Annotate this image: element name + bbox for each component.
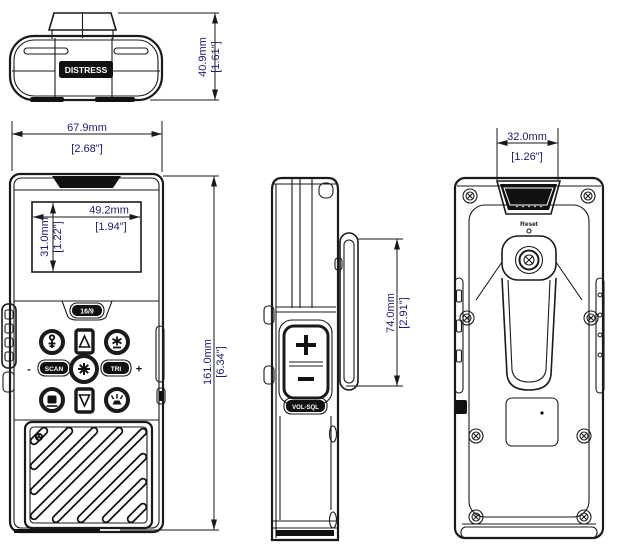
key-bottom-right bbox=[106, 389, 128, 411]
clip-dim-mm: 74.0mm bbox=[385, 293, 397, 333]
back-body-outline bbox=[455, 178, 603, 538]
volume-rocker bbox=[279, 320, 332, 404]
reset-hole bbox=[527, 229, 531, 233]
front-height-mm: 161.0mm bbox=[202, 339, 214, 385]
speaker-grille bbox=[25, 422, 152, 528]
key-tri-label: TRI bbox=[111, 366, 122, 373]
belt-clip-side bbox=[340, 233, 358, 390]
antenna-socket bbox=[319, 183, 333, 198]
key-top-right bbox=[106, 331, 128, 353]
lcd-height-mm: 31.0mm bbox=[39, 217, 51, 257]
front-width-dimension: 67.9mm [2.68"] bbox=[12, 121, 162, 172]
lcd-width-mm: 49.2mm bbox=[89, 205, 129, 217]
clip-length-dimension: 74.0mm [2.91"] bbox=[346, 239, 410, 386]
key-scan-label: SCAN bbox=[45, 366, 64, 373]
top-slot-left bbox=[24, 48, 68, 54]
screw-top-right bbox=[581, 189, 595, 203]
back-width-dimension: 32.0mm [1.26"] bbox=[497, 128, 558, 180]
screws bbox=[460, 189, 598, 524]
memory-icon bbox=[47, 396, 58, 407]
top-notch bbox=[52, 176, 121, 188]
lcd-width-in: [1.94"] bbox=[95, 221, 126, 233]
belt-clip-rear bbox=[476, 236, 582, 390]
key-top-left bbox=[41, 331, 63, 353]
strobe-icon bbox=[112, 394, 123, 405]
plus-label: + bbox=[136, 364, 142, 376]
top-foot-right bbox=[95, 97, 135, 102]
front-height-dimension: 161.0mm [6.34"] bbox=[120, 176, 227, 530]
front-height-in: [6.34"] bbox=[215, 346, 227, 377]
back-top-notch bbox=[497, 181, 560, 214]
battery-door bbox=[506, 398, 558, 446]
vol-sql-label: VOL-SQL bbox=[292, 405, 319, 411]
back-body-inner bbox=[469, 205, 589, 517]
drawing-svg: DISTRESS 40.9mm [1.61"] 16/9 bbox=[0, 0, 619, 550]
key-power bbox=[71, 356, 97, 382]
side-bottom-trim bbox=[276, 530, 334, 536]
screw-top-left bbox=[463, 189, 477, 203]
front-width-in: [2.68"] bbox=[71, 143, 102, 155]
top-view: DISTRESS bbox=[10, 13, 162, 102]
microphone-icon bbox=[35, 433, 43, 441]
key-icon bbox=[49, 335, 56, 348]
front-view: 16/9 bbox=[2, 174, 165, 533]
reset-label: Reset bbox=[520, 221, 539, 228]
plus-glyph bbox=[296, 335, 316, 355]
screw-mid-left bbox=[460, 311, 474, 325]
lcd-height-dimension: 31.0mm [1.22"] bbox=[39, 203, 64, 271]
side-view: VOL-SQL bbox=[264, 178, 358, 540]
depth-dim-in: [1.61"] bbox=[210, 41, 222, 72]
back-width-mm: 32.0mm bbox=[507, 131, 547, 143]
depth-dimension: 40.9mm [1.61"] bbox=[118, 13, 222, 100]
key-down bbox=[76, 389, 93, 412]
power-lock-icon bbox=[78, 363, 90, 375]
backlight-icon bbox=[113, 337, 122, 348]
front-bottom-trim bbox=[14, 529, 100, 533]
key-up bbox=[76, 330, 93, 353]
key-bottom-left bbox=[41, 389, 63, 411]
key-16-9-label: 16/9 bbox=[80, 309, 94, 316]
back-bottom-cap bbox=[461, 527, 597, 538]
distress-label: DISTRESS bbox=[65, 65, 108, 75]
up-arrow-icon bbox=[80, 336, 90, 347]
minus-label: - bbox=[27, 364, 31, 376]
top-foot-left bbox=[30, 97, 64, 102]
clip-dim-in: [2.91"] bbox=[398, 297, 410, 328]
dimensional-drawing: DISTRESS 40.9mm [1.61"] 16/9 bbox=[0, 0, 619, 550]
front-width-mm: 67.9mm bbox=[67, 122, 107, 134]
depth-dim-mm: 40.9mm bbox=[197, 37, 209, 77]
left-rail bbox=[455, 278, 467, 414]
back-width-in: [1.26"] bbox=[511, 151, 542, 163]
lcd-height-in: [1.22"] bbox=[52, 221, 64, 252]
battery-door-hole bbox=[540, 411, 543, 414]
down-arrow-icon bbox=[80, 395, 90, 406]
top-slot-right bbox=[114, 48, 148, 54]
screw-bottom-left-1 bbox=[469, 429, 483, 443]
back-view: Reset bbox=[455, 178, 604, 538]
clip-screw bbox=[516, 247, 543, 274]
